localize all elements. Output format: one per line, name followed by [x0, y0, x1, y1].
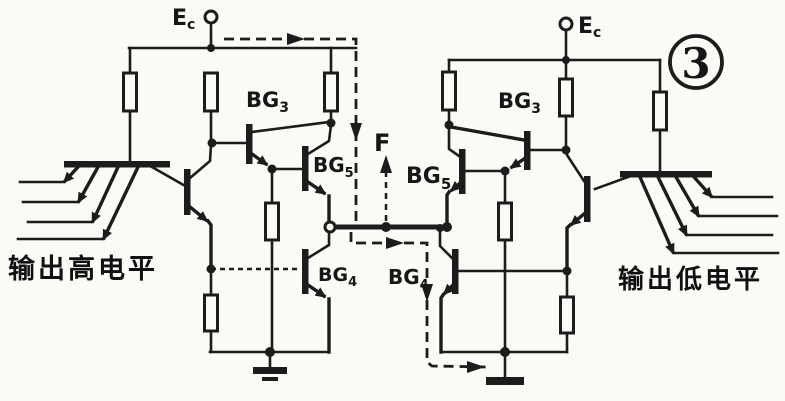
current-arrow-right-icon [386, 237, 404, 249]
supply-terminal-right [560, 18, 572, 30]
figure-canvas: Ec Ec BG3 BG5 BG4 BG3 BG5 BG4 F 输出高电平 输出… [0, 0, 785, 401]
ground-symbol-right [486, 352, 524, 385]
left-gate-circuit [18, 11, 356, 381]
transistor-bg3-right [451, 127, 564, 171]
resistor [124, 73, 137, 111]
resistor [654, 92, 667, 130]
transistor-label-bg5-right: BG5 [406, 164, 451, 193]
resistors-left [124, 48, 338, 352]
wired-output-connection [336, 222, 452, 232]
resistor [560, 79, 573, 116]
circuit-schematic: Ec Ec BG3 BG5 BG4 BG3 BG5 BG4 F 输出高电平 输出… [0, 0, 785, 401]
transistor-bg5-left [302, 125, 335, 232]
power-rail-right [449, 18, 660, 64]
output-low-caption: 输出低电平 [618, 264, 763, 295]
transistor-bg4-right [436, 224, 459, 352]
figure-number-badge: 3 [670, 36, 722, 88]
power-rail-left [129, 11, 356, 52]
figure-number: 3 [681, 39, 710, 88]
right-gate-circuit [436, 18, 778, 385]
multi-emitter-transistor-right [595, 171, 778, 253]
current-arrow-right-icon [287, 33, 305, 45]
phase-splitter-transistor-left [184, 139, 301, 274]
current-arrow-up-icon [380, 155, 392, 173]
net-f-label: F [374, 129, 390, 157]
resistor [325, 73, 338, 111]
transistor-label-bg3-left: BG3 [246, 88, 289, 116]
net-f-arrow [380, 155, 392, 221]
multi-emitter-transistor-left [18, 161, 187, 239]
resistor [443, 72, 456, 110]
supply-terminal-left [205, 11, 217, 23]
transistor-label-bg5-left: BG5 [313, 153, 354, 181]
transistor-bg4-left [302, 233, 329, 352]
resistors-right [443, 60, 667, 352]
output-high-caption: 输出高电平 [8, 253, 158, 285]
current-arrow-down-icon [350, 123, 362, 141]
ground-rail-left [210, 347, 329, 381]
current-arrow-right-icon [467, 361, 485, 373]
transistor-label-bg4-left: BG4 [318, 264, 357, 290]
resistor [499, 203, 512, 240]
transistor-label-bg4-right: BG4 [388, 265, 429, 293]
resistor [205, 295, 218, 331]
transistor-label-bg3-right: BG3 [498, 89, 541, 117]
ground-symbol-left [253, 352, 287, 381]
supply-label-left: Ec [172, 6, 195, 33]
resistor [266, 203, 279, 240]
supply-label-right: Ec [578, 14, 601, 41]
resistor [561, 297, 574, 333]
resistor [205, 73, 218, 111]
